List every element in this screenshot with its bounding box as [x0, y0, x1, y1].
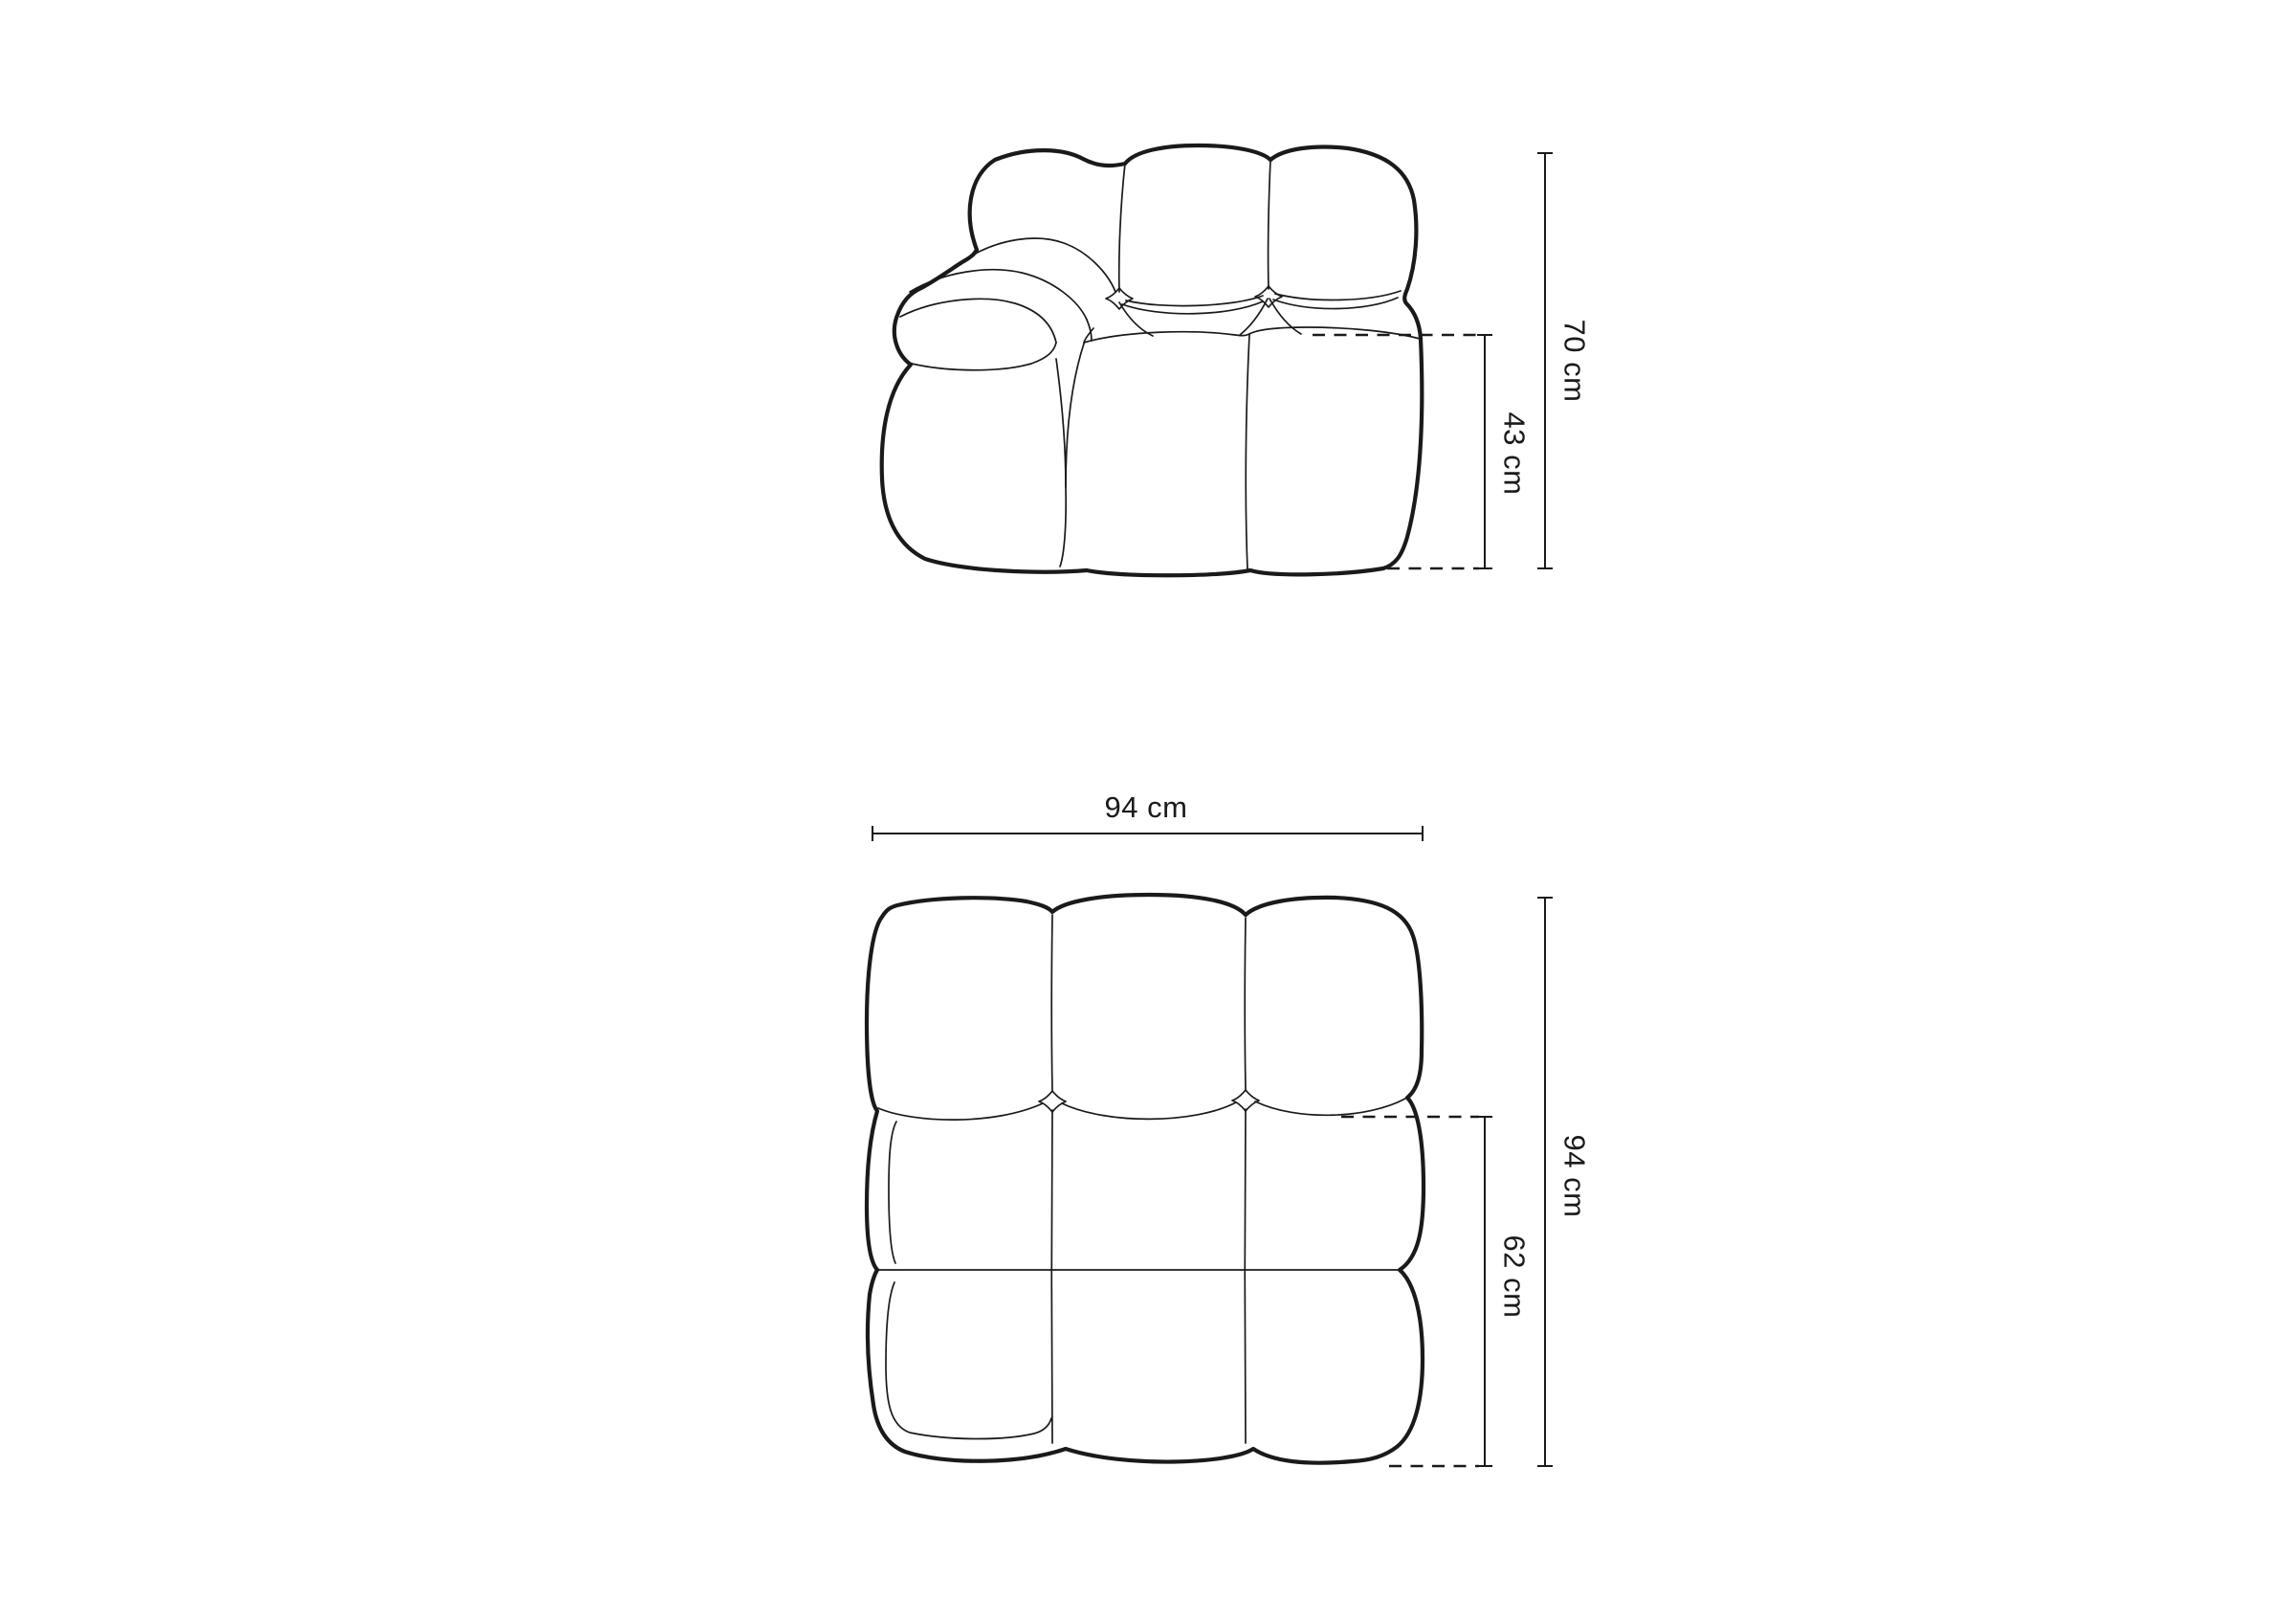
overall-height-dimension-line — [1537, 898, 1553, 1466]
column-seam — [1051, 915, 1052, 1091]
bottom-view-height-label: 94 cm — [1558, 1135, 1592, 1218]
top-view-seat-height-label: 43 cm — [1498, 412, 1532, 496]
top-view-silhouette — [882, 145, 1423, 575]
column-seam — [1245, 1109, 1246, 1443]
dimension-diagram-page: 70 cm 43 cm 94 cm 94 cm 62 cm — [0, 0, 2296, 1623]
sofa-dimension-diagram: 70 cm 43 cm 94 cm 94 cm 62 cm — [0, 0, 2296, 1623]
width-dimension-line — [872, 826, 1423, 841]
sofa-top-view — [882, 145, 1423, 575]
seat-height-dimension-line — [1477, 1117, 1492, 1466]
top-view-height-label: 70 cm — [1558, 320, 1592, 403]
bottom-view-silhouette — [867, 895, 1424, 1463]
bottom-view-width-label: 94 cm — [1105, 790, 1188, 824]
seat-height-dimension-line — [1477, 335, 1492, 568]
overall-height-dimension-line — [1537, 153, 1553, 568]
bottom-view-seat-height-label: 62 cm — [1498, 1235, 1532, 1319]
sofa-bottom-view — [867, 895, 1424, 1463]
column-seam — [1245, 918, 1246, 1090]
column-seam — [1051, 1110, 1052, 1443]
